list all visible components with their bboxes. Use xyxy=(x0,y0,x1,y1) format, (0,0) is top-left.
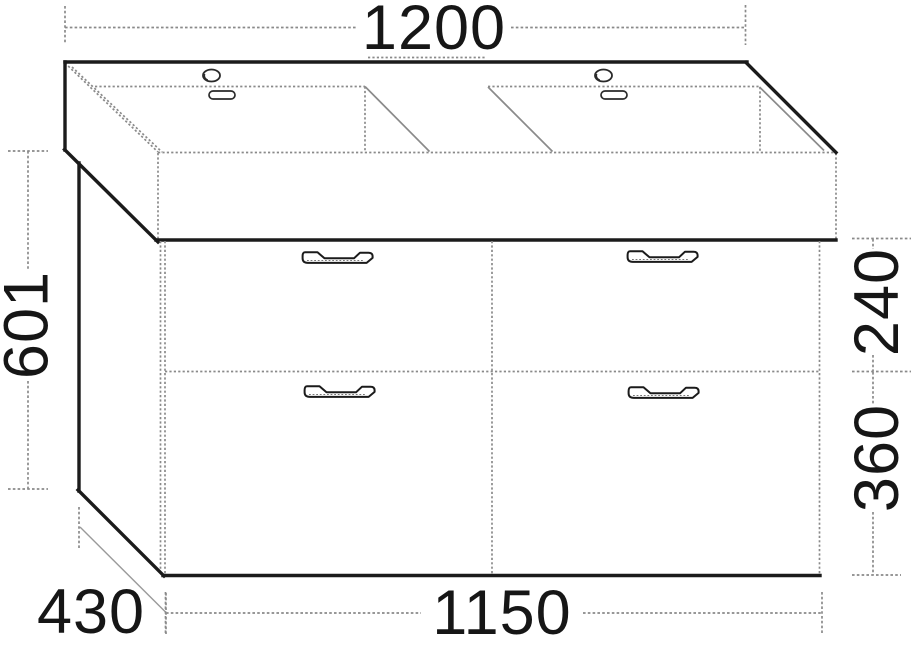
drawer-handle-top-right-icon xyxy=(628,251,698,262)
technical-drawing-canvas: 1200 601 240 xyxy=(0,0,912,654)
right-overflow-slot-icon xyxy=(601,91,627,99)
drawer-handle-top-left-icon xyxy=(303,252,373,263)
countertop-left-rim-edge xyxy=(72,67,162,152)
right-faucet-hole-icon xyxy=(595,70,612,82)
dimension-upper-drawer-height: 240 xyxy=(842,239,912,372)
left-overflow-slot-icon xyxy=(209,91,235,99)
dimension-cabinet-width: 1150 xyxy=(166,578,822,648)
vanity-cabinet xyxy=(78,163,820,576)
right-basin-left-wall-rim xyxy=(488,87,553,152)
right-basin-right-wall-rim xyxy=(760,87,825,151)
countertop-left-top-edge xyxy=(65,63,158,152)
dimension-label-overall-width: 1200 xyxy=(362,0,506,63)
drawer-handle-bottom-right-icon xyxy=(629,387,699,398)
dimension-cabinet-depth: 430 xyxy=(37,507,167,647)
dimension-overall-height: 601 xyxy=(0,151,62,489)
dimension-label-lower-drawer-height: 360 xyxy=(842,404,912,512)
countertop-right-diagonal-edge xyxy=(746,63,836,153)
countertop-hidden-edges xyxy=(65,63,836,239)
left-basin xyxy=(95,87,430,152)
cabinet-outline xyxy=(78,163,820,576)
dimension-label-overall-height: 601 xyxy=(0,271,62,379)
dimension-overall-width: 1200 xyxy=(65,0,746,63)
cabinet-bottom-left-diagonal xyxy=(78,490,164,576)
left-faucet-hole-icon xyxy=(203,70,220,82)
dimension-label-upper-drawer-height: 240 xyxy=(842,248,912,356)
left-basin-right-wall-rim xyxy=(365,87,430,152)
dimension-label-cabinet-depth: 430 xyxy=(37,577,145,647)
vanity-unit-dimension-drawing: 1200 601 240 xyxy=(0,0,912,654)
dimension-lower-drawer-height: 360 xyxy=(842,372,912,575)
drawer-handle-bottom-left-icon xyxy=(305,386,375,397)
dimension-label-cabinet-width: 1150 xyxy=(432,578,571,648)
washbasin-countertop xyxy=(65,58,837,243)
cabinet-hidden-edges xyxy=(161,241,820,575)
right-basin xyxy=(488,87,824,152)
